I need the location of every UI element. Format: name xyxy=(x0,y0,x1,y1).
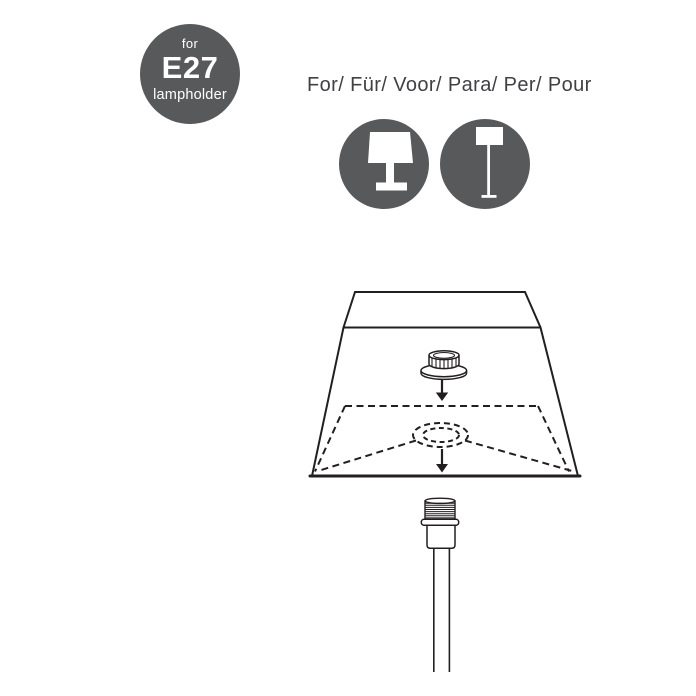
knurl-ticks xyxy=(432,358,456,368)
lampshade-assembly-diagram xyxy=(0,0,696,696)
threaded-rod xyxy=(421,498,458,672)
down-arrow-lower xyxy=(436,449,448,473)
rod-socket-cup xyxy=(427,525,455,548)
product-diagram-canvas: for E27 lampholder For/ Für/ Voor/ Para/… xyxy=(0,0,696,696)
bottom-opening-dashed xyxy=(315,406,572,472)
rod-flange xyxy=(421,519,458,525)
retaining-ring xyxy=(421,351,467,380)
fitting-hole-inner-dashed xyxy=(423,428,459,442)
down-arrow-upper xyxy=(436,379,448,401)
thread-section xyxy=(425,498,455,519)
lampshade-outline xyxy=(310,292,580,476)
